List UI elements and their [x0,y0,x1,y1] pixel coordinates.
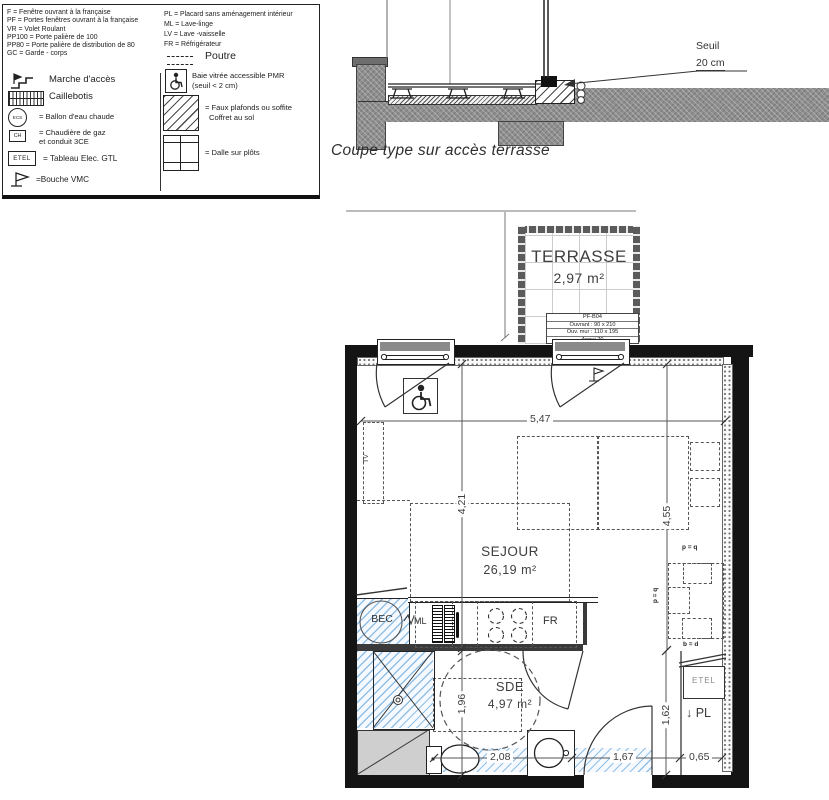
desk-code-side: p = q [652,588,659,603]
dim-width-top: 5,47 [527,413,553,425]
dim-placard-width: 0,65 [686,751,712,763]
tv-label: TV [363,454,370,463]
placard-label: ↓ PL [686,706,711,720]
fr-label: FR [543,615,558,627]
plan-linework [0,0,829,800]
dim-sde-height: 1,96 [456,691,468,717]
floorplan-sheet: F = Fenêtre ouvrant à la française PF = … [0,0,829,800]
sde-area: 4,97 m² [475,697,545,711]
dim-entry-width: 1,67 [610,751,636,763]
sejour-area: 26,19 m² [460,563,560,577]
sejour-name: SEJOUR [460,544,560,559]
desk-code-bottom: b = d [683,641,698,648]
dim-sde-width: 2,08 [487,751,513,763]
dim-sejour-height: 4,21 [456,491,468,517]
desk-code-top: p = q [682,544,697,551]
sde-name: SDE [480,679,540,694]
ml-label: ML [414,616,427,626]
dim-entry-height: 1,62 [660,702,672,728]
bec-label: BEC [363,613,401,625]
dim-right-height: 4,55 [661,503,673,529]
